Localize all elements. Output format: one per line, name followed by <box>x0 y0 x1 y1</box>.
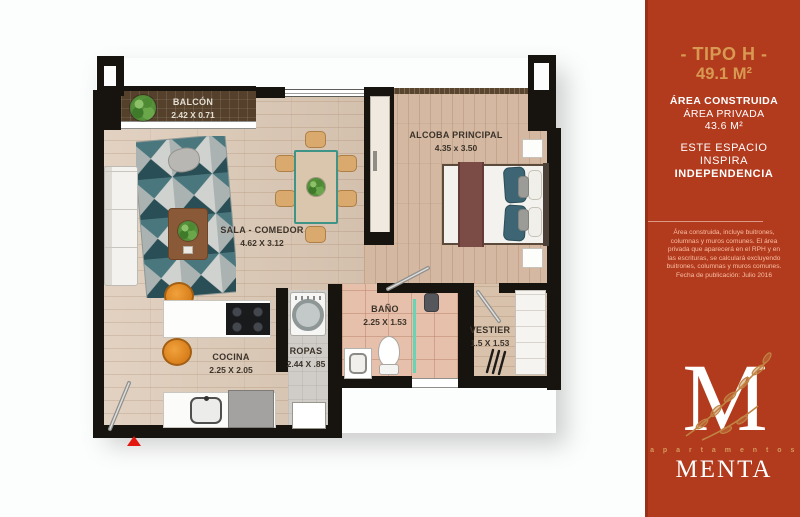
oven <box>228 390 274 428</box>
chimney-notch <box>104 66 116 86</box>
room-label-vestier: VESTIER 1.5 X 1.53 <box>470 324 511 350</box>
ropas-door <box>292 402 326 429</box>
balcon-glass-door <box>121 121 256 129</box>
tagline-line1: ESTE ESPACIO <box>648 142 800 154</box>
alcoba-dims: 4.35 x 3.50 <box>409 142 502 155</box>
wall <box>93 90 121 130</box>
wall <box>93 90 104 438</box>
alcoba-sliding-door <box>370 96 390 234</box>
sidebar: - TIPO H - 49.1 M² ÁREA CONSTRUIDA ÁREA … <box>645 0 800 517</box>
coffee-table-plant-icon <box>178 221 198 241</box>
pillow <box>528 170 542 200</box>
window <box>285 89 364 97</box>
room-label-ropas: ROPAS 2.44 X .85 <box>287 345 326 371</box>
divider <box>648 221 763 222</box>
cooktop <box>226 303 270 335</box>
vestier-name: VESTIER <box>470 324 511 337</box>
room-label-bano: BAÑO 2.25 X 1.53 <box>363 303 406 329</box>
toilet-tank <box>379 364 399 375</box>
pillow <box>528 207 542 237</box>
disclaimer-line: Fecha de publicación: Julio 2016 <box>658 272 790 281</box>
sofa <box>104 166 138 286</box>
dining-plant-icon <box>307 178 325 196</box>
kitchen-sink <box>190 397 222 424</box>
area-privada-label: ÁREA PRIVADA <box>648 108 800 120</box>
ropas-dims: 2.44 X .85 <box>287 358 326 371</box>
wall-ropas-right <box>328 284 342 433</box>
tagline-line3: INDEPENDENCIA <box>648 168 800 180</box>
disclaimer-line: Área construida, incluye buitrones, <box>658 229 790 238</box>
disclaimer-line: columnas y muros comunes. El área <box>658 238 790 247</box>
vestier-closet <box>515 290 546 375</box>
dining-chair <box>275 190 296 207</box>
shower-glass <box>413 299 416 373</box>
ropas-name: ROPAS <box>287 345 326 358</box>
wall-bano-top <box>377 283 460 293</box>
room-label-cocina: COCINA 2.25 X 2.05 <box>209 351 252 377</box>
headboard <box>543 163 549 246</box>
cocina-dims: 2.25 X 2.05 <box>209 364 252 377</box>
disclaimer-line: privada que aparecerá en el RPH y en <box>658 246 790 255</box>
nightstand <box>522 248 543 268</box>
shower-head <box>424 293 439 312</box>
bathroom-sink <box>344 348 372 379</box>
bano-dims: 2.25 X 1.53 <box>363 316 406 329</box>
wall <box>104 86 256 91</box>
dining-chair <box>305 131 326 148</box>
area-privada-value: 43.6 M² <box>648 120 800 132</box>
balcon-dims: 2.42 X 0.71 <box>171 109 214 122</box>
sala-dims: 4.62 X 3.12 <box>220 237 303 250</box>
kitchen-stool <box>162 338 192 366</box>
unit-total-area: 49.1 M² <box>648 65 800 84</box>
wall-partition-bottom <box>364 232 394 245</box>
entrance-marker-icon <box>127 436 141 446</box>
alcoba-name: ALCOBA PRINCIPAL <box>409 129 502 142</box>
pillow <box>518 209 529 231</box>
chimney-notch <box>534 63 549 90</box>
room-label-alcoba: ALCOBA PRINCIPAL 4.35 x 3.50 <box>409 129 502 155</box>
dining-chair <box>305 226 326 243</box>
cocina-name: COCINA <box>209 351 252 364</box>
room-label-balcon: BALCÓN 2.42 X 0.71 <box>171 96 214 122</box>
logo-apartamentos: a p a r t a m e n t o s <box>648 447 800 454</box>
balcony-plant-icon <box>130 95 156 121</box>
floor-plan: BALCÓN 2.42 X 0.71 ALCOBA PRINCIPAL 4.35… <box>0 0 645 517</box>
wall-right <box>547 128 561 390</box>
pillow <box>518 176 529 198</box>
dining-chair <box>336 155 357 172</box>
dining-chair <box>275 155 296 172</box>
tagline-line2: INSPIRA <box>648 155 800 167</box>
logo-monogram: M <box>648 352 800 444</box>
alcoba-window-sill <box>394 88 528 94</box>
balcon-name: BALCÓN <box>171 96 214 109</box>
sala-name: SALA - COMEDOR <box>220 224 303 237</box>
shower-window <box>412 378 458 388</box>
disclaimer-line: buitrones, columnas y muros comunes. <box>658 263 790 272</box>
logo-brand-name: MENTA <box>648 456 800 484</box>
wall-vestier-bottom <box>458 376 561 388</box>
disclaimer-text: Área construida, incluye buitrones, colu… <box>658 229 790 281</box>
table-decor <box>183 246 193 254</box>
unit-type-title: - TIPO H - <box>648 44 800 65</box>
area-construida-label: ÁREA CONSTRUIDA <box>648 95 800 107</box>
bed-runner <box>458 162 484 247</box>
wall <box>256 87 285 98</box>
flyer-page: BALCÓN 2.42 X 0.71 ALCOBA PRINCIPAL 4.35… <box>0 0 800 517</box>
dining-chair <box>336 190 357 207</box>
exterior-mask <box>342 383 364 428</box>
room-label-sala: SALA - COMEDOR 4.62 X 3.12 <box>220 224 303 250</box>
vestier-dims: 1.5 X 1.53 <box>470 337 511 350</box>
bano-name: BAÑO <box>363 303 406 316</box>
nightstand <box>522 139 543 158</box>
washing-machine <box>290 292 326 336</box>
disclaimer-line: las escrituras, se calculará excluyendo <box>658 255 790 264</box>
toilet <box>378 336 400 367</box>
